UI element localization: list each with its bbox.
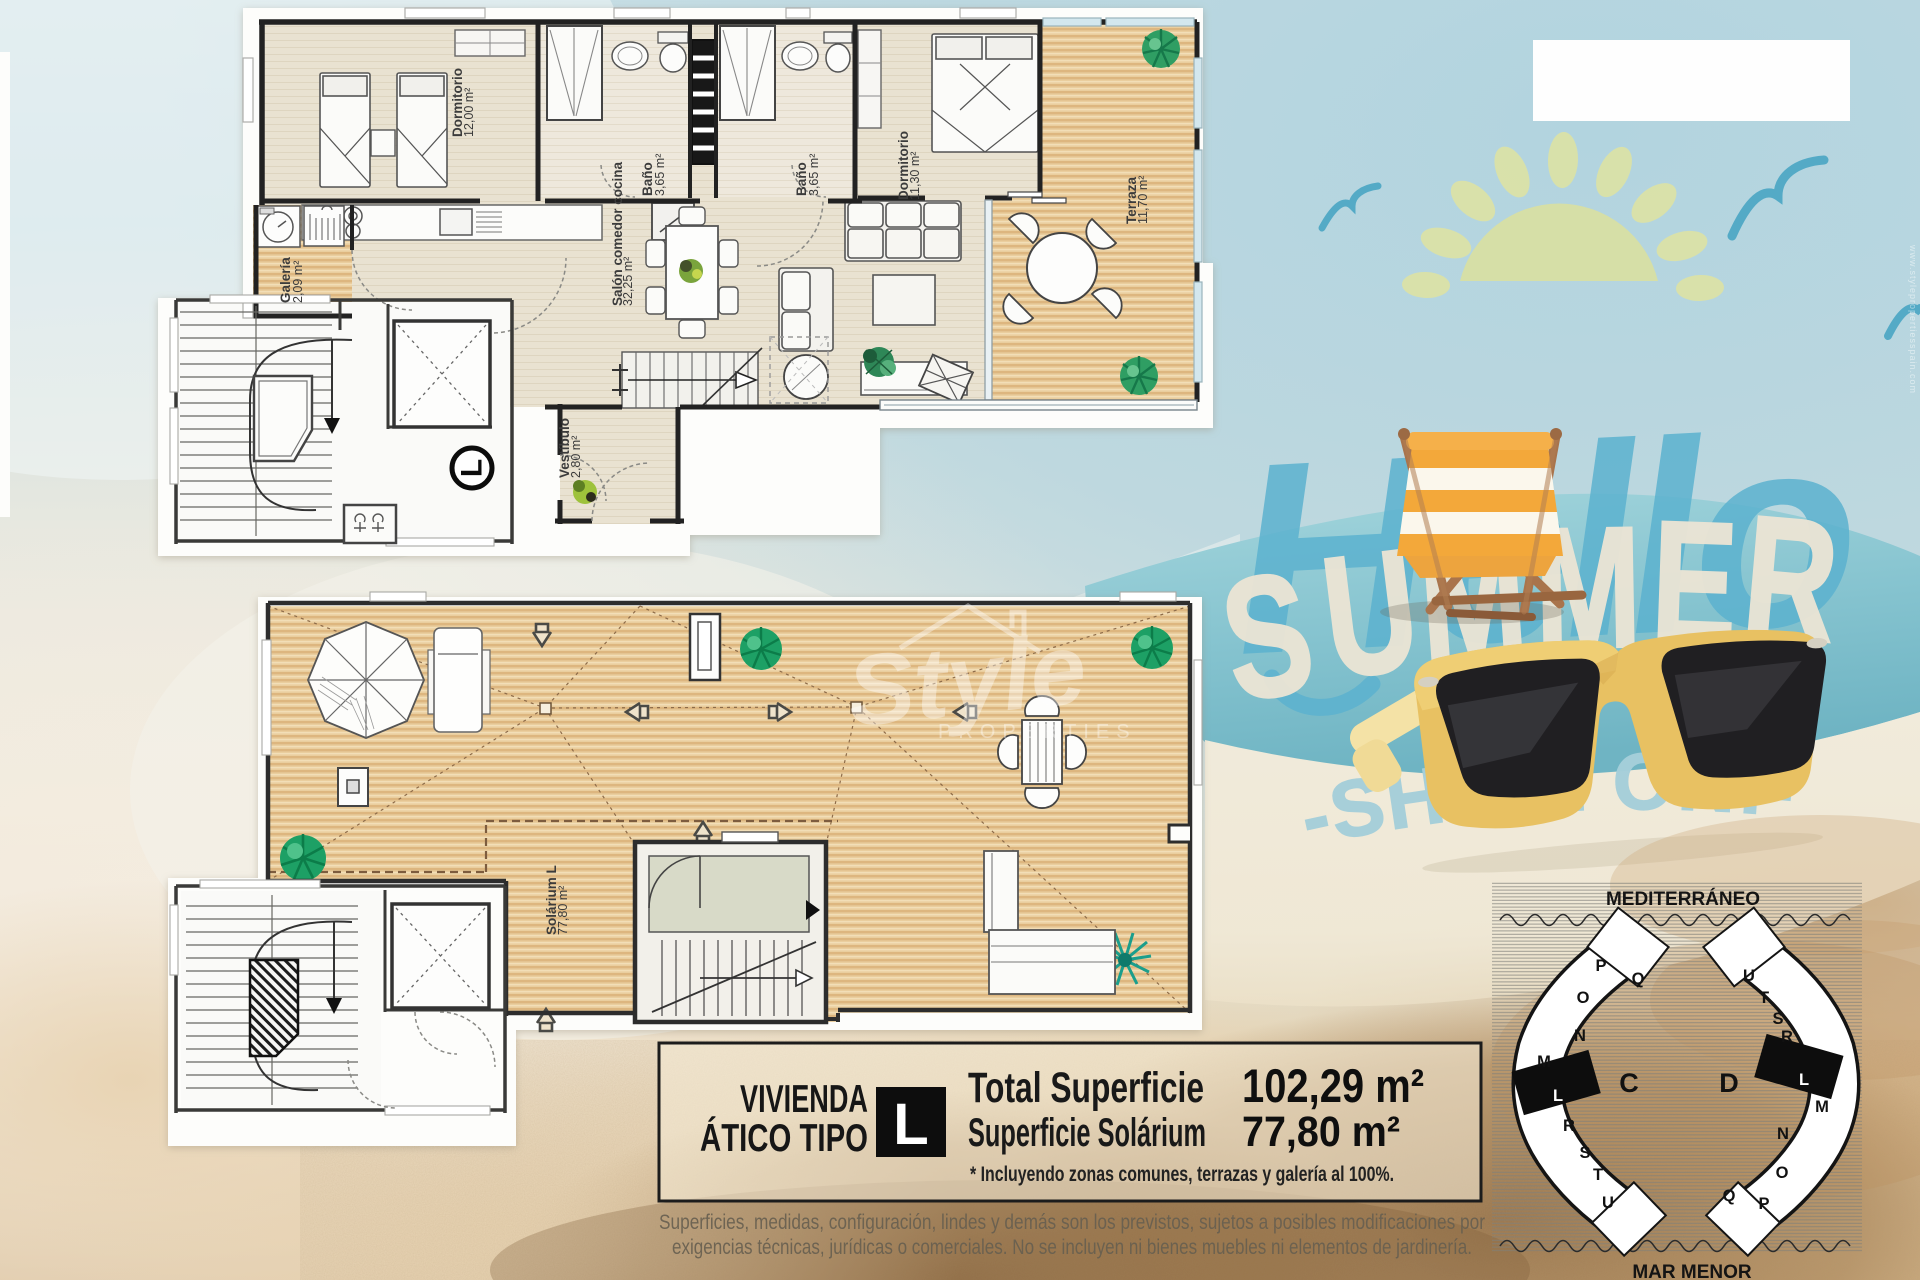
svg-text:VIVIENDA: VIVIENDA: [740, 1078, 868, 1121]
svg-text:exigencias técnicas, jurídicas: exigencias técnicas, jurídicas o comerci…: [672, 1236, 1472, 1259]
svg-text:Q: Q: [1723, 1187, 1736, 1205]
svg-text:Superficies, medidas, configur: Superficies, medidas, configuración, lin…: [659, 1211, 1485, 1234]
svg-text:U: U: [1602, 1194, 1614, 1212]
svg-text:P: P: [1595, 957, 1606, 975]
svg-text:L: L: [1553, 1087, 1563, 1105]
svg-text:Q: Q: [1632, 970, 1645, 988]
svg-text:T: T: [1593, 1166, 1603, 1184]
svg-text:O: O: [1776, 1164, 1789, 1182]
svg-text:Total Superficie: Total Superficie: [968, 1064, 1204, 1112]
svg-text:L: L: [456, 459, 489, 477]
svg-text:3,65 m²: 3,65 m²: [653, 154, 667, 196]
svg-text:MEDITERRÁNEO: MEDITERRÁNEO: [1606, 888, 1760, 910]
svg-text:Superficie Solárium: Superficie Solárium: [968, 1111, 1206, 1155]
svg-text:www.stylepropertiesspain.com: www.stylepropertiesspain.com: [1908, 244, 1918, 394]
svg-text:MAR MENOR: MAR MENOR: [1632, 1262, 1752, 1280]
svg-text:P: P: [1758, 1195, 1769, 1213]
svg-text:O: O: [1577, 989, 1590, 1007]
svg-text:102,29 m²: 102,29 m²: [1242, 1059, 1424, 1112]
svg-text:M: M: [1537, 1053, 1551, 1071]
svg-text:12,00 m²: 12,00 m²: [462, 88, 476, 137]
svg-text:2,09 m²: 2,09 m²: [291, 261, 305, 303]
svg-text:L: L: [893, 1092, 928, 1157]
svg-text:S: S: [1579, 1144, 1590, 1162]
svg-text:D: D: [1719, 1068, 1739, 1098]
svg-text:N: N: [1777, 1125, 1789, 1143]
svg-text:11,70 m²: 11,70 m²: [1136, 176, 1150, 224]
svg-text:T: T: [1759, 989, 1769, 1007]
svg-text:3,65 m²: 3,65 m²: [807, 154, 821, 196]
svg-text:ÁTICO TIPO: ÁTICO TIPO: [700, 1116, 868, 1160]
svg-text:M: M: [1815, 1098, 1829, 1116]
svg-text:C: C: [1619, 1068, 1639, 1098]
svg-text:R: R: [1563, 1117, 1575, 1135]
svg-text:U: U: [1743, 967, 1755, 985]
svg-text:11,30 m²: 11,30 m²: [908, 152, 922, 200]
svg-text:R: R: [1781, 1028, 1793, 1046]
svg-text:* Incluyendo zonas comunes, te: * Incluyendo zonas comunes, terrazas y g…: [970, 1163, 1394, 1186]
svg-text:77,80 m²: 77,80 m²: [556, 886, 570, 935]
svg-text:S: S: [1772, 1010, 1783, 1028]
svg-text:32,25 m²: 32,25 m²: [621, 257, 635, 306]
svg-text:L: L: [1799, 1071, 1809, 1089]
svg-text:N: N: [1574, 1027, 1586, 1045]
svg-text:PROPERTIES: PROPERTIES: [938, 721, 1137, 743]
svg-text:2,80 m²: 2,80 m²: [569, 436, 583, 478]
svg-text:77,80 m²: 77,80 m²: [1242, 1108, 1400, 1156]
